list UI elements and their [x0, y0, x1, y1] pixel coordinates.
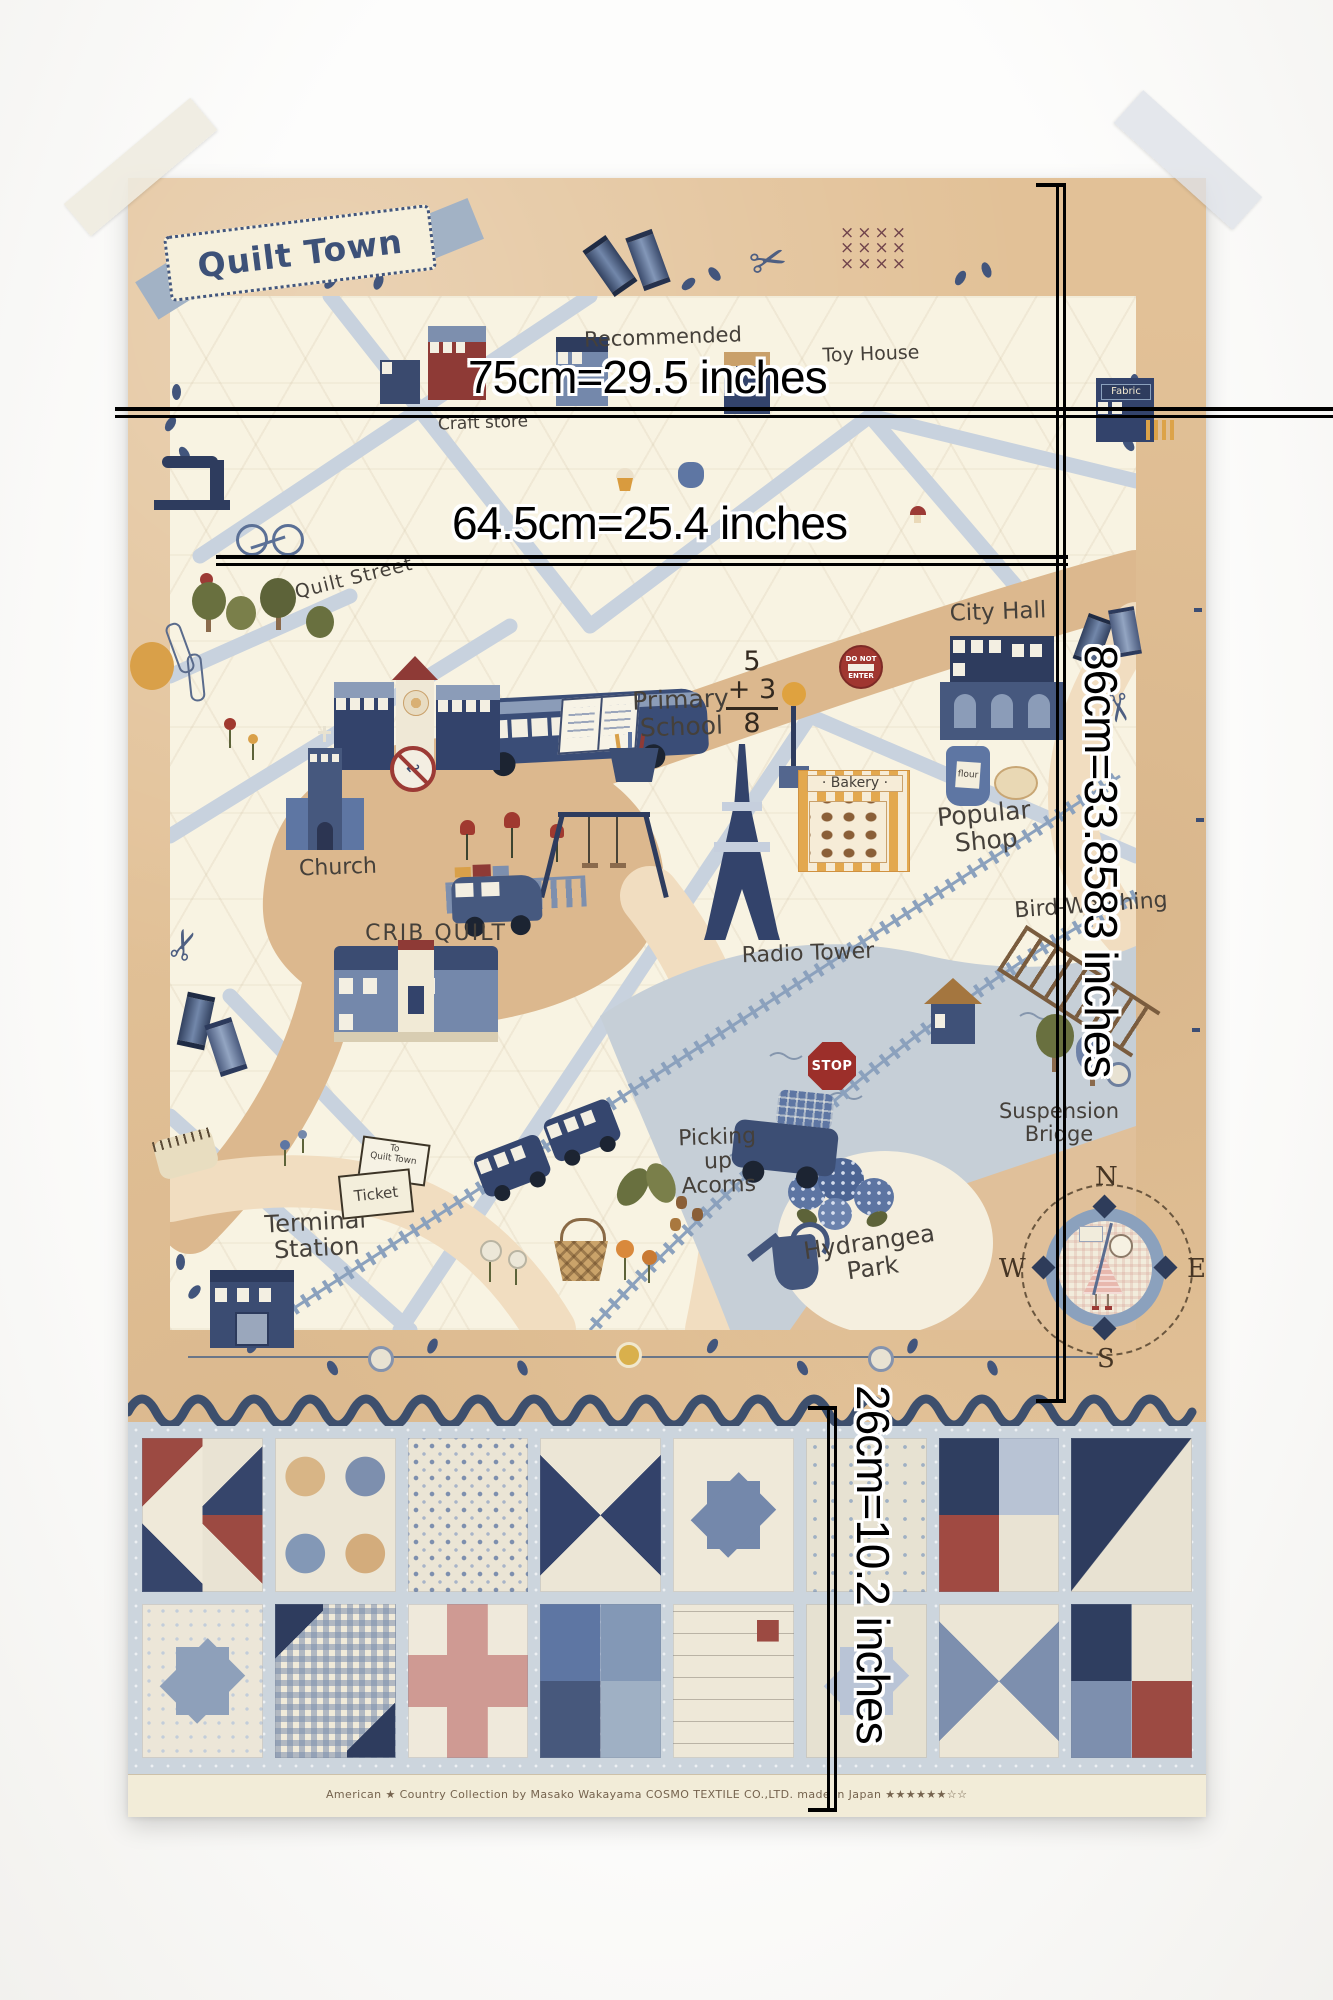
quilt-town-banner: Quilt Town — [163, 204, 437, 302]
tree-icon — [192, 582, 226, 620]
compass-letter-s: S — [1097, 1344, 1115, 1374]
pond-house-icon — [924, 978, 982, 1044]
measure-height-map-cap-bottom — [1036, 1399, 1066, 1403]
daisy-icon — [480, 1240, 502, 1282]
measure-width-mid-line2 — [216, 563, 1068, 566]
measure-height-map-line — [1056, 183, 1059, 1403]
pencil-basket-icon — [606, 748, 662, 782]
quilt-block — [673, 1438, 794, 1592]
measure-strip-cap-bottom — [808, 1808, 837, 1812]
bottom-garland — [188, 1336, 1098, 1380]
selvage-text: American ★ Country Collection by Masako … — [326, 1788, 967, 1801]
quilt-block — [540, 1604, 661, 1758]
flower-icon — [298, 1130, 307, 1153]
measure-width-top-text: 75cm=29.5 inches — [468, 350, 827, 404]
bicycle-icon — [236, 514, 304, 556]
church-building — [286, 748, 364, 850]
ticket-text: Ticket — [353, 1184, 399, 1205]
fabric-shop-sign: Fabric — [1101, 384, 1151, 400]
leaf-icon — [172, 384, 181, 400]
compass-rose: N E S W — [1005, 1168, 1205, 1368]
cross-stitch-icon: ×××× ×××× ×××× — [840, 226, 909, 272]
leaf-icon — [679, 275, 697, 292]
daisy-icon — [508, 1250, 527, 1285]
quilt-block — [1071, 1604, 1192, 1758]
compass-letter-w: W — [999, 1254, 1026, 1284]
label-bakery: · Bakery · — [807, 775, 903, 792]
compass-letter-n: N — [1095, 1162, 1118, 1192]
city-hall-building — [940, 636, 1064, 740]
measure-width-mid-line — [216, 555, 1068, 559]
house-icon — [380, 360, 420, 404]
ticket-note-text: To Quilt Town — [366, 1141, 422, 1168]
flour-label: flour — [955, 761, 981, 789]
quilt-block — [939, 1604, 1060, 1758]
coffee-pot-icon — [678, 462, 704, 488]
ticket-tag: Ticket — [338, 1168, 414, 1219]
measure-width-mid-text: 64.5cm=25.4 inches — [452, 496, 847, 550]
leaf-icon — [706, 265, 723, 283]
flour-jar-icon: flour — [946, 746, 990, 806]
quilt-block — [540, 1438, 661, 1592]
tree-icon — [226, 596, 256, 630]
math-addend-top: 5 — [726, 648, 778, 676]
leaf-icon — [980, 261, 994, 279]
measure-height-map-text: 86cm=33.8583 inches — [1074, 645, 1128, 1077]
leaf-icon — [176, 1254, 185, 1270]
label-church: Church — [288, 854, 389, 881]
quilt-block — [142, 1604, 263, 1758]
measure-strip-line — [827, 1408, 830, 1810]
tree-icon — [1036, 1014, 1074, 1058]
selvage-tick — [1194, 608, 1202, 612]
banner-title: Quilt Town — [195, 221, 404, 285]
flower-button-icon — [616, 1342, 642, 1368]
flower-icon — [224, 718, 236, 748]
label-crib-quilt: CRIB QUILT — [346, 922, 526, 946]
tree-icon — [306, 606, 334, 638]
quilt-sampler-strip — [128, 1422, 1206, 1774]
fabric-panel: Quilt Town ✂ ×××× ×××× ×××× Recommended … — [128, 178, 1206, 1816]
photo-wall: Quilt Town ✂ ×××× ×××× ×××× Recommended … — [0, 0, 1333, 2000]
tree-icon — [130, 642, 174, 690]
leaf-icon — [953, 269, 969, 287]
label-toy-house: Toy House — [816, 342, 927, 366]
mushroom-icon — [910, 506, 926, 523]
flower-icon — [616, 1240, 634, 1280]
measure-width-top-line — [115, 407, 1333, 411]
selvage-tick — [1196, 818, 1204, 822]
swing-set-icon — [558, 812, 650, 900]
crib-quilt-building — [334, 946, 498, 1042]
do-not-enter-text-bottom: ENTER — [848, 672, 874, 680]
measure-height-map-cap-top — [1036, 183, 1066, 187]
terminal-station-building — [210, 1270, 294, 1348]
quilt-block — [275, 1604, 396, 1758]
measure-width-top-line2 — [115, 415, 1333, 418]
do-not-enter-sign: DO NOT ENTER — [839, 645, 883, 689]
selvage-strip: American ★ Country Collection by Masako … — [128, 1774, 1206, 1817]
quilt-block — [142, 1438, 263, 1592]
bakery-stand: · Bakery · — [798, 770, 910, 872]
label-primary-school: Primary School — [605, 683, 757, 742]
scissors-icon: ✂ — [744, 232, 793, 291]
compass-letter-e: E — [1187, 1254, 1206, 1284]
compass-girl-figure — [1077, 1228, 1133, 1312]
sewing-machine-icon — [154, 450, 230, 510]
measure-strip-line2 — [834, 1408, 837, 1810]
yellow-fence-icon — [1146, 420, 1174, 440]
label-popular-shop: Popular Shop — [918, 794, 1052, 859]
label-city-hall: City Hall — [928, 598, 1069, 628]
quilt-block — [275, 1438, 396, 1592]
basket-icon — [554, 1218, 608, 1281]
button-icon — [368, 1346, 394, 1372]
quilt-block — [939, 1438, 1060, 1592]
stop-sign-text: STOP — [812, 1059, 853, 1074]
button-icon — [868, 1346, 894, 1372]
measure-strip-cap-top — [808, 1406, 837, 1410]
cupcake-icon — [616, 468, 634, 491]
measure-strip-text: 26cm=10.2 inches — [846, 1385, 900, 1744]
label-suspension-bridge: Suspension Bridge — [984, 1100, 1134, 1145]
flower-icon — [280, 1140, 290, 1166]
radio-tower-icon — [704, 744, 780, 940]
flower-icon — [642, 1250, 657, 1283]
quilt-block — [673, 1604, 794, 1758]
selvage-tick — [1192, 1028, 1200, 1032]
quilt-block — [408, 1438, 529, 1592]
label-picking-up-acorns: Picking up Acorns — [647, 1124, 789, 1200]
do-not-enter-text-top: DO NOT — [846, 655, 877, 663]
flower-icon — [248, 734, 258, 760]
school-building-icon — [436, 698, 500, 770]
measure-height-map-line2 — [1063, 183, 1066, 1403]
do-not-enter-bar — [848, 664, 874, 671]
quilt-block — [1071, 1438, 1192, 1592]
quilt-block — [408, 1604, 529, 1758]
no-u-turn-sign: ↩ — [390, 746, 436, 792]
